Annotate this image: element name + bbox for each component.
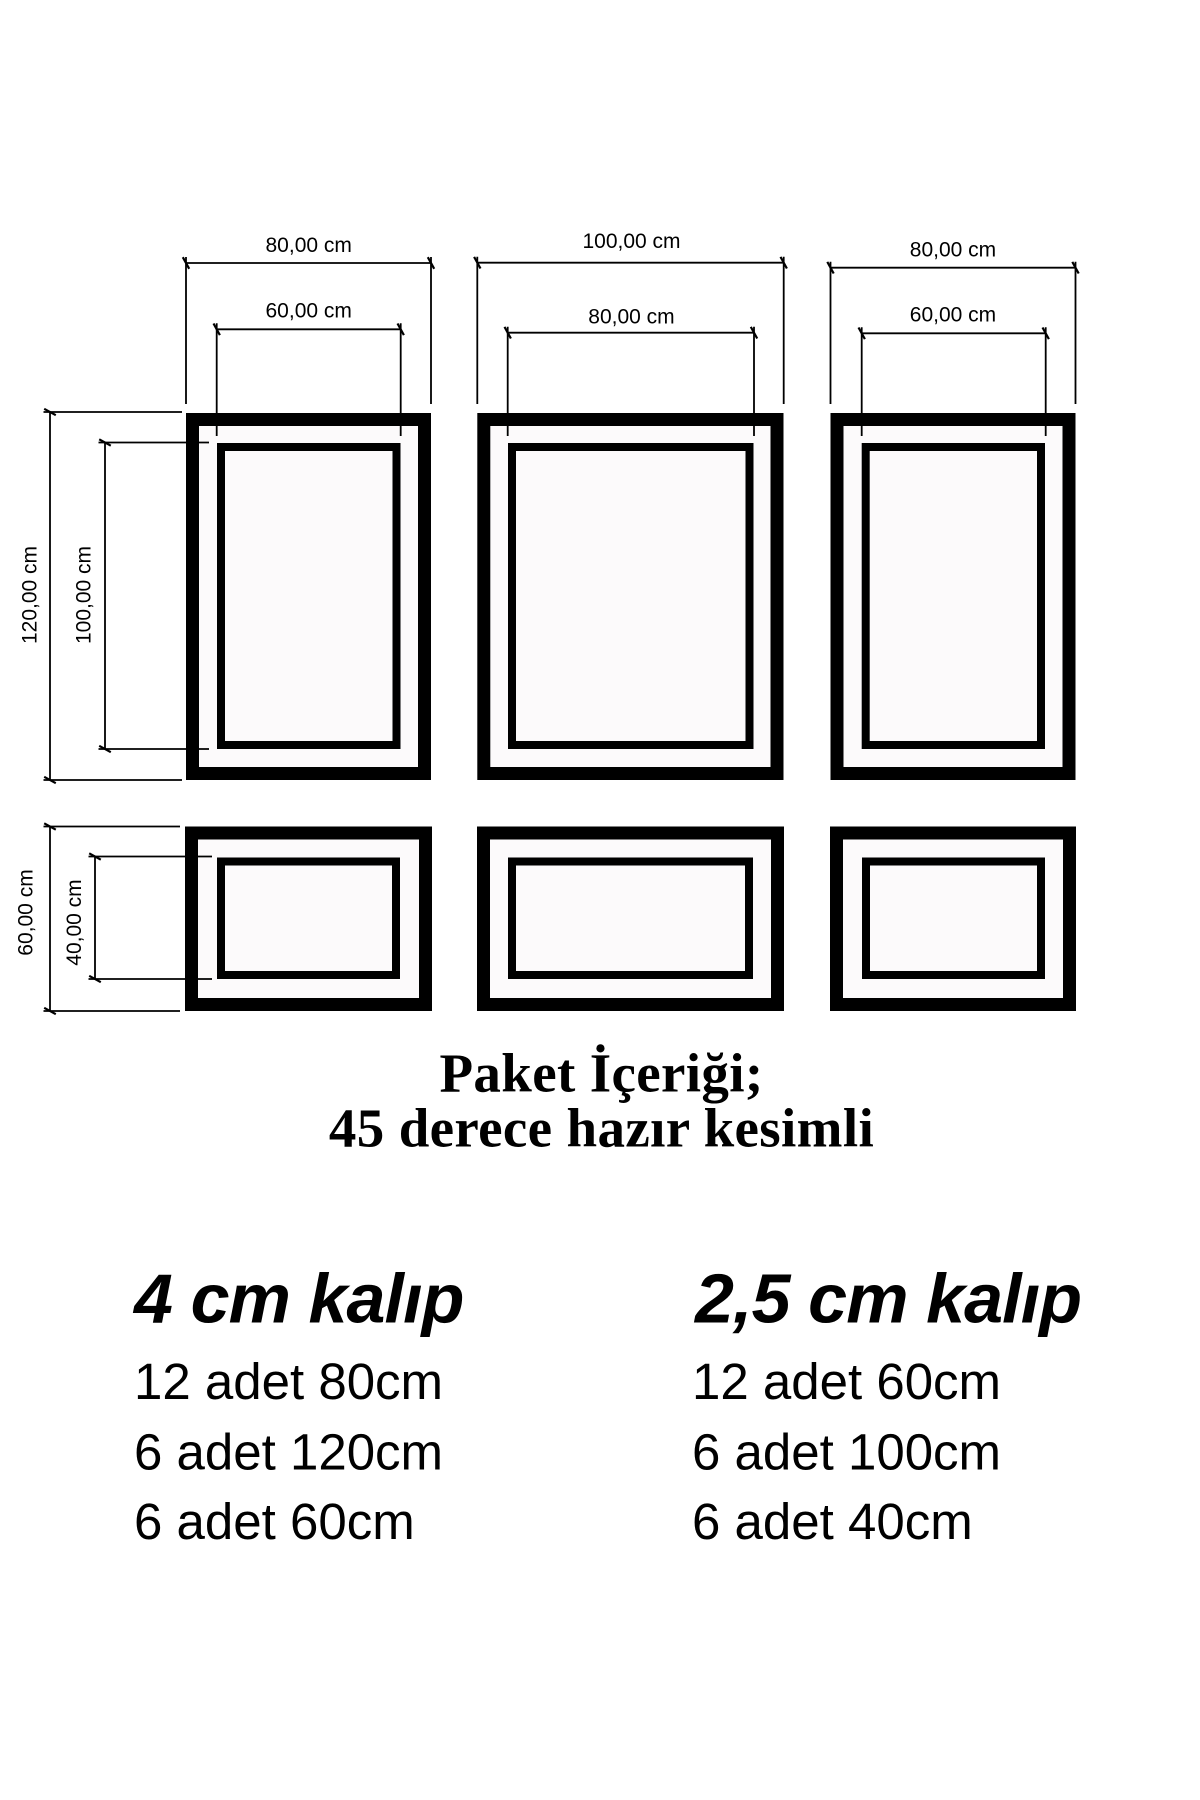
svg-text:80,00 cm: 80,00 cm (266, 234, 352, 257)
svg-text:100,00 cm: 100,00 cm (582, 230, 680, 253)
svg-text:6 adet 100cm: 6 adet 100cm (692, 1423, 1001, 1480)
svg-text:2,5 cm kalıp: 2,5 cm kalıp (693, 1259, 1081, 1337)
svg-text:4 cm kalıp: 4 cm kalıp (132, 1259, 464, 1337)
svg-text:12 adet 80cm: 12 adet 80cm (134, 1353, 443, 1410)
svg-text:60,00 cm: 60,00 cm (910, 304, 996, 327)
svg-text:80,00 cm: 80,00 cm (910, 239, 996, 262)
svg-text:60,00 cm: 60,00 cm (15, 869, 38, 955)
svg-text:100,00 cm: 100,00 cm (73, 546, 96, 644)
svg-text:60,00 cm: 60,00 cm (266, 299, 352, 322)
svg-text:12 adet 60cm: 12 adet 60cm (692, 1353, 1001, 1410)
svg-text:6 adet 40cm: 6 adet 40cm (692, 1493, 973, 1550)
svg-text:6 adet 120cm: 6 adet 120cm (134, 1423, 443, 1480)
svg-text:40,00 cm: 40,00 cm (63, 879, 86, 965)
svg-text:45 derece hazır kesimli: 45 derece hazır kesimli (329, 1098, 874, 1159)
svg-text:120,00 cm: 120,00 cm (19, 546, 42, 644)
svg-text:6 adet 60cm: 6 adet 60cm (134, 1493, 415, 1550)
svg-text:80,00 cm: 80,00 cm (588, 305, 674, 328)
svg-text:Paket İçeriği;: Paket İçeriği; (439, 1042, 763, 1103)
